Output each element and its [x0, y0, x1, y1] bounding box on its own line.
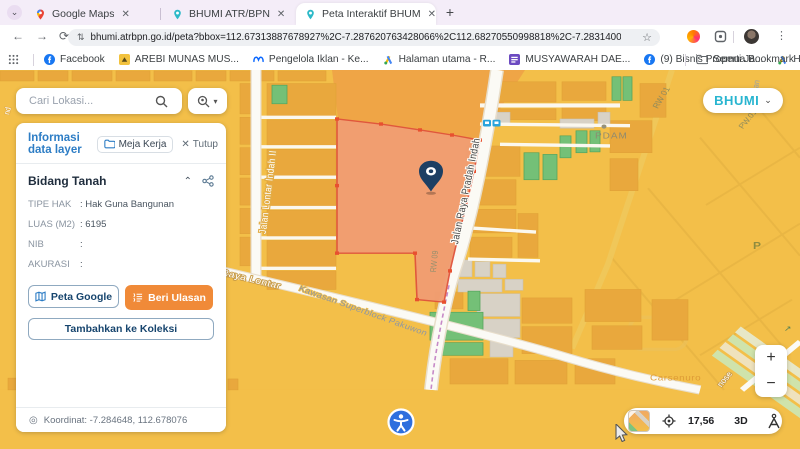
zoom-to-location-button[interactable]: ▾ [188, 88, 227, 114]
tab-peta-interaktif-active[interactable]: Peta Interaktif BHUMI ATR/BPN ✕ [296, 3, 436, 25]
tab-close-icon[interactable]: ✕ [277, 9, 285, 20]
meta-icon [253, 54, 264, 65]
bookmarks-divider [33, 54, 34, 66]
review-icon [132, 292, 143, 303]
bookmarks-divider [685, 54, 686, 66]
tab-bhumi[interactable]: BHUMI ATR/BPN ✕ [163, 3, 291, 25]
tab-strip: ⌄ Google Maps ✕ BHUMI ATR/BPN ✕ [0, 0, 800, 25]
peta-google-button[interactable]: Peta Google [28, 285, 119, 308]
tutup-label: Tutup [193, 139, 218, 150]
facebook-icon [44, 54, 55, 65]
3d-mode-button[interactable]: 3D [734, 415, 747, 427]
field-nib: NIB : [16, 234, 226, 254]
profile-avatar[interactable] [744, 29, 759, 44]
locate-icon[interactable] [662, 414, 676, 428]
field-label: NIB [28, 239, 80, 250]
field-label: TIPE HAK [28, 199, 80, 210]
bookmark-label: MUSYAWARAH DAE... [525, 54, 630, 65]
label-carsenuro: Carsenuro [650, 373, 701, 382]
field-luas: LUAS (M2) : 6195 [16, 214, 226, 234]
zoom-level-value: 17,56 [688, 415, 714, 427]
close-icon: ✕ [181, 139, 189, 150]
koordinat-text: Koordinat: -7.284648, 112.678076 [44, 415, 188, 426]
apps-grid-icon[interactable] [8, 54, 19, 65]
crosshair-icon: ◎ [29, 415, 38, 426]
panel-title: Informasi data layer [28, 132, 97, 156]
google-ads-icon [383, 54, 394, 65]
section-title: Bidang Tanah [28, 174, 184, 188]
all-bookmarks-button[interactable]: Semua Bookmark [713, 54, 794, 65]
north-compass-icon[interactable] [766, 413, 782, 430]
label-parking-p: P [753, 241, 762, 252]
tab-title: Peta Interaktif BHUMI ATR/BPN [322, 8, 421, 20]
musyawarah-icon [509, 54, 520, 65]
zoom-out-button[interactable]: − [766, 375, 775, 393]
bookmark-halaman-utama-1[interactable]: Halaman utama - R... [383, 54, 496, 65]
address-bar[interactable]: ⇅ bhumi.atrbpn.go.id/peta?bbox=112.67313… [68, 29, 660, 46]
tambahkan-koleksi-label: Tambahkan ke Koleksi [65, 323, 177, 335]
search-input[interactable] [27, 94, 151, 108]
collapse-chevron-icon[interactable]: ⌃ [184, 176, 192, 187]
basemap-switcher-thumbnail[interactable] [628, 410, 650, 432]
tab-close-icon[interactable]: ✕ [428, 9, 436, 20]
bookmarks-bar: Facebook AREBI MUNAS MUS... Pengelola Ik… [0, 49, 800, 71]
field-label: LUAS (M2) [28, 219, 80, 230]
google-map-icon [35, 291, 46, 302]
field-value: : [80, 259, 83, 270]
new-tab-button[interactable]: + [441, 3, 459, 21]
tab-search-button[interactable]: ⌄ [7, 5, 22, 20]
tab-close-icon[interactable]: ✕ [121, 9, 129, 20]
chevron-down-icon: ⌄ [764, 95, 772, 106]
search-icon[interactable] [155, 95, 168, 108]
toolbar-divider [733, 31, 734, 43]
field-value: : [80, 239, 83, 250]
share-icon[interactable] [202, 175, 214, 187]
info-panel: Informasi data layer Meja Kerja ✕ Tutup … [16, 123, 226, 432]
bookmark-label: Halaman utama - R... [793, 54, 800, 65]
workspace-folder-icon [104, 139, 115, 149]
url-text: bhumi.atrbpn.go.id/peta?bbox=112.6731388… [91, 32, 621, 43]
bookmark-label: Facebook [60, 54, 105, 65]
bhumi-favicon [305, 9, 316, 20]
field-value: : Hak Guna Bangunan [80, 199, 174, 210]
meja-kerja-button[interactable]: Meja Kerja [97, 136, 174, 153]
extensions-puzzle-icon[interactable] [714, 30, 727, 43]
bhumi-logo-button[interactable]: BHUMI ⌄ [703, 88, 783, 113]
bhumi-logo-text: BHUMI [714, 93, 759, 108]
meja-kerja-label: Meja Kerja [119, 139, 167, 150]
browser-toolbar: ← → ⟳ ⇅ bhumi.atrbpn.go.id/peta?bbox=112… [0, 25, 800, 49]
field-value: : 6195 [80, 219, 106, 230]
browser-menu-icon[interactable]: ⋮ [776, 29, 787, 42]
extension-icon[interactable] [687, 30, 700, 43]
tambahkan-koleksi-button[interactable]: Tambahkan ke Koleksi [28, 318, 214, 340]
bookmark-star-icon[interactable]: ☆ [642, 31, 652, 44]
bookmark-label: AREBI MUNAS MUS... [135, 54, 239, 65]
field-akurasi: AKURASI : [16, 254, 226, 274]
peta-google-label: Peta Google [51, 291, 112, 303]
coordinate-readout: ◎ Koordinat: -7.284648, 112.678076 [16, 407, 226, 432]
bhumi-favicon [172, 9, 183, 20]
facebook-icon [644, 54, 655, 65]
tab-google-maps[interactable]: Google Maps ✕ [26, 3, 158, 25]
tab-title: Google Maps [52, 8, 114, 20]
close-panel-button[interactable]: ✕ Tutup [181, 139, 218, 150]
zoom-controls: + − [755, 345, 787, 397]
bookmark-facebook[interactable]: Facebook [44, 54, 105, 65]
label-pdam: PDAM [595, 131, 628, 140]
bookmark-musyawarah[interactable]: MUSYAWARAH DAE... [509, 54, 630, 65]
pdam-poi-dot [602, 124, 607, 128]
tab-title: BHUMI ATR/BPN [189, 8, 270, 20]
beri-ulasan-label: Beri Ulasan [148, 292, 206, 304]
field-label: AKURASI [28, 259, 80, 270]
mouse-cursor [615, 424, 629, 442]
field-tipe-hak: TIPE HAK : Hak Guna Bangunan [16, 194, 226, 214]
tab-divider [160, 8, 161, 20]
forward-icon[interactable]: → [36, 29, 48, 43]
back-icon[interactable]: ← [12, 29, 24, 43]
location-search-card [16, 88, 182, 114]
accessibility-widget-button[interactable] [387, 408, 415, 436]
chevron-down-icon: ▾ [213, 97, 217, 106]
arebi-icon [119, 54, 130, 65]
beri-ulasan-button[interactable]: Beri Ulasan [125, 285, 213, 310]
map-toolbar: 17,56 3D [624, 408, 782, 434]
bookmark-arebi[interactable]: AREBI MUNAS MUS... [119, 54, 239, 65]
browser-window: ⌄ Google Maps ✕ BHUMI ATR/BPN ✕ [0, 0, 800, 449]
bookmark-pengelola-iklan[interactable]: Pengelola Iklan - Ke... [253, 54, 369, 65]
bookmark-label: Pengelola Iklan - Ke... [269, 54, 369, 65]
site-info-icon[interactable]: ⇅ [77, 32, 85, 43]
google-maps-icon [35, 9, 46, 20]
magnifier-pin-icon [197, 95, 210, 108]
zoom-in-button[interactable]: + [766, 349, 775, 367]
bookmark-label: Halaman utama - R... [399, 54, 496, 65]
one-way-arrow: ↗ [784, 324, 792, 333]
folder-icon [696, 54, 708, 65]
